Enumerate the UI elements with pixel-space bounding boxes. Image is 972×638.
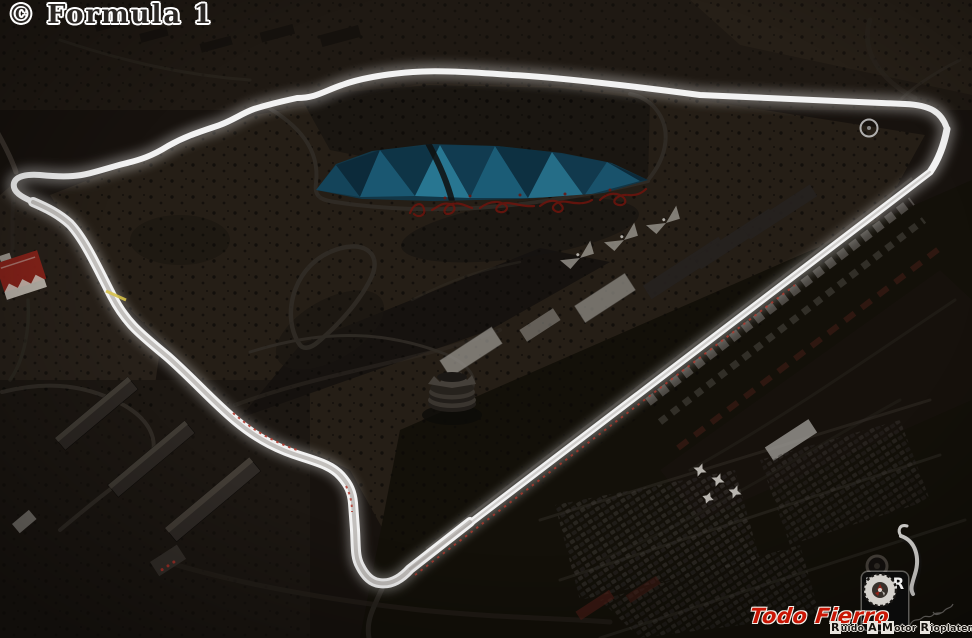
- rmr-wheel-icon: [862, 572, 898, 608]
- rmr-caption-word: A: [867, 621, 878, 634]
- formula1-watermark: © Formula 1: [8, 0, 213, 30]
- scene-svg: [0, 0, 972, 638]
- rmr-caption: RuidoAMotorRioplatense: [830, 621, 972, 634]
- rmr-caption-word: Rioplatense: [920, 621, 972, 634]
- vignette: [0, 0, 972, 638]
- aerial-night-photo-bahrain-circuit: © Formula 1 Todo Fierro RMR RuidoAMotorR…: [0, 0, 972, 638]
- rmr-caption-word: Ruido: [830, 621, 864, 634]
- rmr-caption-word: Motor: [881, 621, 917, 634]
